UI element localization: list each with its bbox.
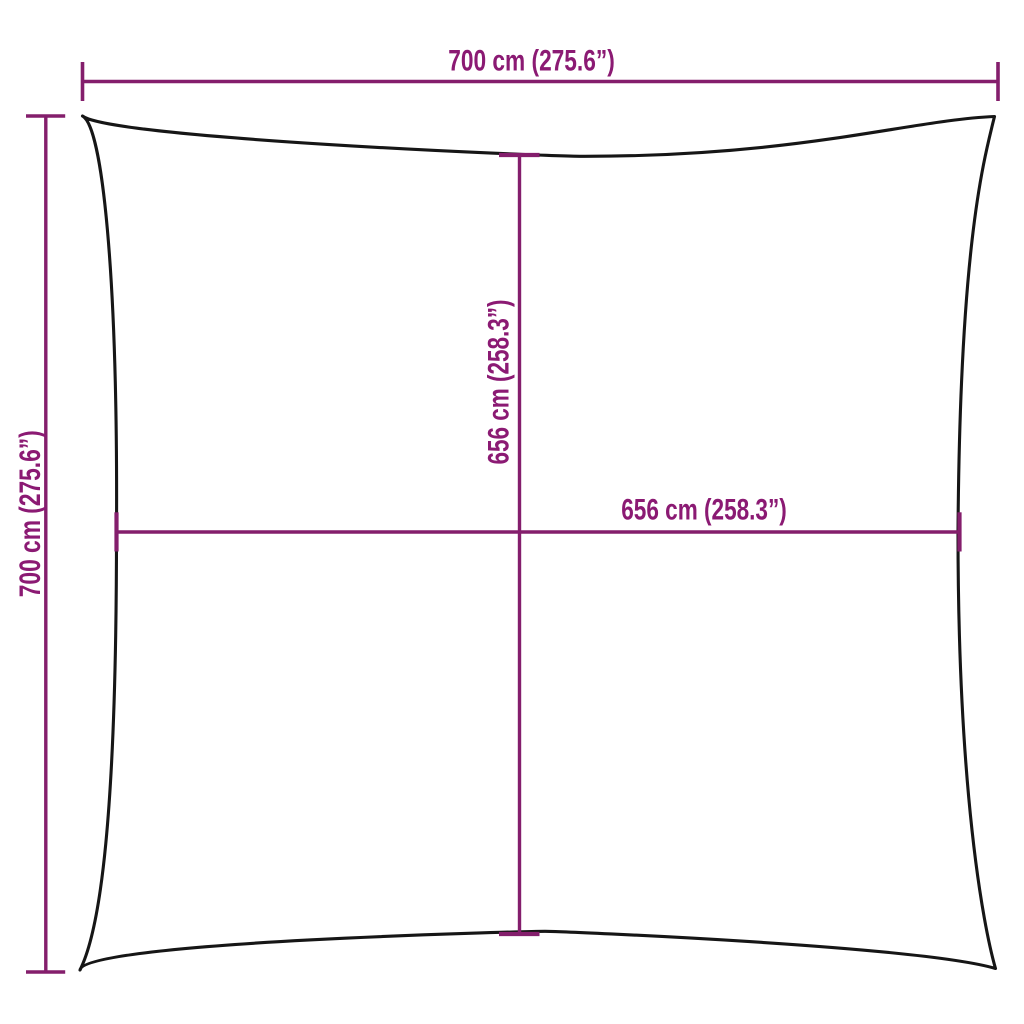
svg-text:700 cm (275.6”): 700 cm (275.6”) [448,45,615,78]
svg-text:700 cm (275.6”): 700 cm (275.6”) [14,430,47,597]
svg-text:656 cm (258.3”): 656 cm (258.3”) [483,300,516,465]
svg-text:656 cm (258.3”): 656 cm (258.3”) [621,493,787,526]
